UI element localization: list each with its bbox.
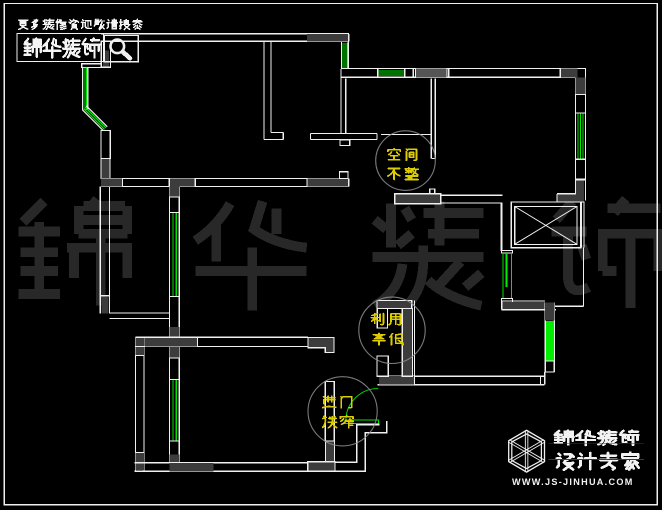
svg-text:WWW.JS-JINHUA.COM: WWW.JS-JINHUA.COM — [512, 477, 634, 487]
